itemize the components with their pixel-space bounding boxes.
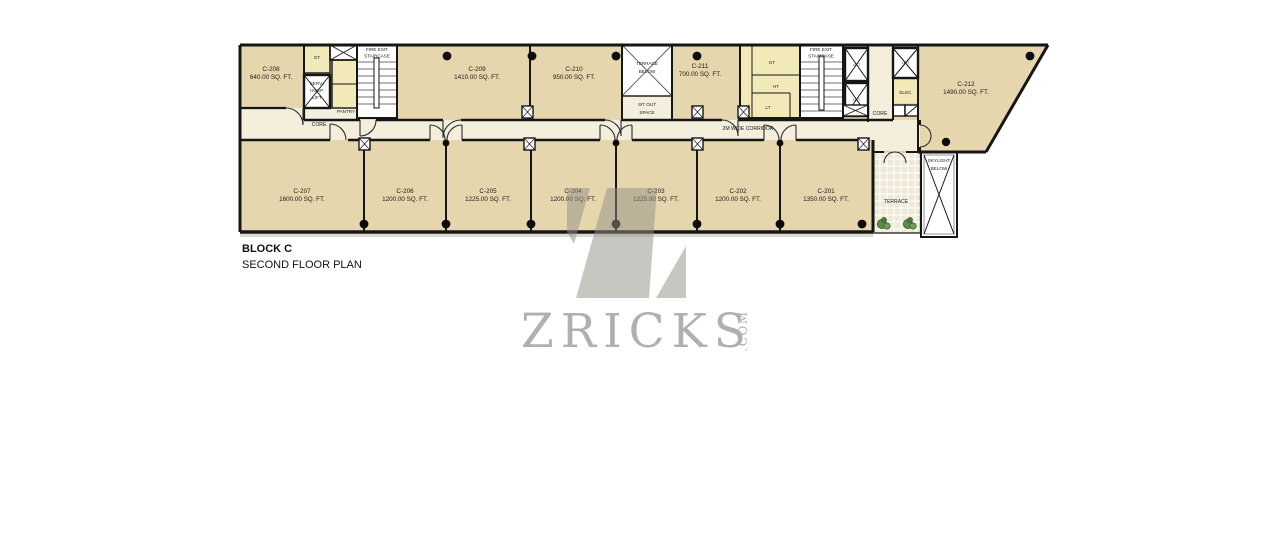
bottom-wing-floor bbox=[240, 140, 873, 232]
terrace-label: TERRACE bbox=[884, 199, 909, 205]
room-area: 640.00 SQ. FT. bbox=[250, 74, 293, 81]
gt-right-label: GT bbox=[769, 60, 776, 65]
fire-exit-right-line2: STAIRCASE bbox=[808, 54, 834, 59]
lt-label: LT bbox=[765, 105, 770, 110]
watermark-brand: ZRICKS bbox=[521, 304, 753, 359]
sit-out-space-floor bbox=[622, 96, 672, 120]
sit-out-line2: SPACE bbox=[639, 110, 654, 115]
pantry-label: PANTRY bbox=[337, 109, 355, 114]
room-area: 1200.00 SQ. FT. bbox=[382, 196, 428, 203]
room-id: C-205 bbox=[479, 188, 497, 195]
room-id: C-201 bbox=[817, 188, 835, 195]
serv-lift-line3: LIFT bbox=[312, 95, 322, 100]
lift-label-3: LIFT bbox=[902, 61, 910, 65]
corridor-east-floor bbox=[868, 122, 920, 152]
stair-divider-left bbox=[374, 58, 379, 108]
room-area: 1225.00 SQ. FT. bbox=[465, 196, 511, 203]
room-area: 1490.00 SQ. FT. bbox=[943, 89, 989, 96]
room-id: C-206 bbox=[396, 188, 414, 195]
room-area: 1200.00 SQ. FT. bbox=[715, 196, 761, 203]
plan-titles: BLOCK C SECOND FLOOR PLAN bbox=[242, 243, 362, 271]
fire-exit-right-line1: FIRE EXIT bbox=[810, 47, 832, 52]
floor-plan-svg: C-208 640.00 SQ. FT. C-209 1410.00 SQ. F… bbox=[0, 0, 1265, 547]
wall-shadow bbox=[240, 234, 873, 237]
terrace-below-line1: TERRACE bbox=[636, 61, 658, 66]
room-id: C-212 bbox=[957, 81, 975, 88]
sit-out-line1: SIT OUT bbox=[638, 102, 656, 107]
room-area: 700.00 SQ. FT. bbox=[679, 71, 722, 78]
stair-divider-right bbox=[819, 56, 824, 110]
core-label-right: CORE bbox=[873, 111, 888, 117]
serv-lift-line1: SERV./ bbox=[310, 81, 325, 86]
corridor-label: 2M WIDE CORRIDOR bbox=[723, 126, 774, 132]
room-id: C-208 bbox=[262, 66, 280, 73]
room-area: 1410.00 SQ. FT. bbox=[454, 74, 500, 81]
room-id: C-210 bbox=[565, 66, 583, 73]
room-id: C-202 bbox=[729, 188, 747, 195]
fire-exit-left-line1: FIRE EXIT bbox=[366, 47, 388, 52]
room-id: C-211 bbox=[692, 63, 709, 70]
watermark-tld: .COM bbox=[736, 310, 750, 351]
skylight-box bbox=[921, 152, 957, 237]
lift-label-1: LIFT bbox=[853, 63, 861, 67]
floor-plan-image: C-208 640.00 SQ. FT. C-209 1410.00 SQ. F… bbox=[0, 0, 1265, 547]
meter-box bbox=[893, 105, 905, 116]
terrace-below-line2: BELOW bbox=[639, 69, 656, 74]
floor-title: SECOND FLOOR PLAN bbox=[242, 259, 362, 271]
room-area: 1600.00 SQ. FT. bbox=[279, 196, 325, 203]
serv-lift-line2: HOSP. bbox=[310, 88, 324, 93]
elec-label: ELEC. bbox=[899, 90, 912, 95]
skylight-line1: SKYLIGHT bbox=[928, 158, 951, 163]
fire-exit-left-line2: STAIRCASE bbox=[364, 54, 390, 59]
ht-label: HT bbox=[773, 84, 779, 89]
block-title: BLOCK C bbox=[242, 243, 292, 255]
skylight-line2: BELOW bbox=[931, 166, 948, 171]
room-id: C-209 bbox=[468, 66, 486, 73]
room-id: C-207 bbox=[293, 188, 311, 195]
core-label-left: CORE bbox=[312, 122, 327, 128]
gt-left-label: GT bbox=[314, 55, 321, 60]
room-c212-floor bbox=[918, 45, 1048, 152]
duct-shaft-left bbox=[330, 45, 357, 60]
room-area: 1350.00 SQ. FT. bbox=[803, 196, 849, 203]
lift-label-2: LIFT bbox=[853, 98, 861, 102]
room-area: 950.00 SQ. FT. bbox=[553, 74, 596, 81]
